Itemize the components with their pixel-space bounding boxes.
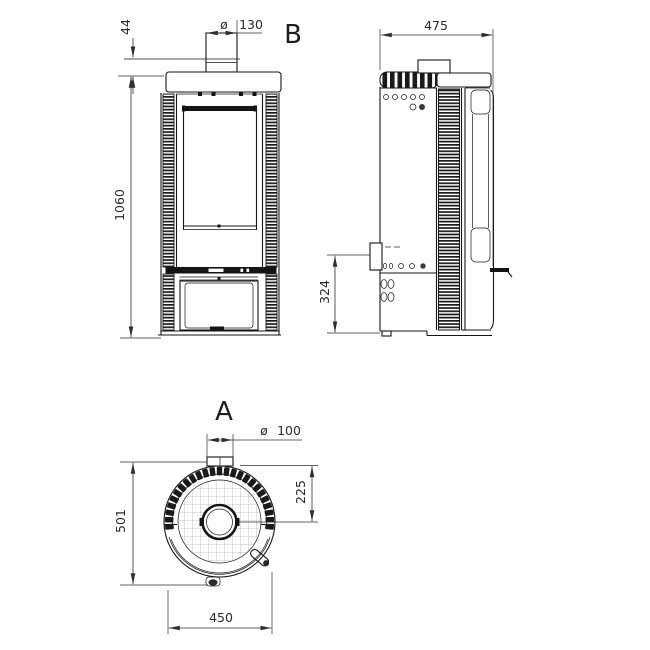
base-hole bbox=[388, 280, 394, 289]
rib-strip-right-lower bbox=[266, 274, 277, 331]
flue-tab-right bbox=[235, 518, 240, 526]
front-view bbox=[124, 33, 281, 335]
view-label-a: A bbox=[215, 397, 233, 427]
side-view bbox=[370, 60, 512, 336]
depth-value: 475 bbox=[424, 18, 448, 33]
collar-height-value: 44 bbox=[118, 19, 133, 35]
air-inlet-spigot-side bbox=[370, 243, 382, 270]
view-label-b: B bbox=[284, 20, 302, 50]
divider-band bbox=[166, 267, 277, 280]
base-hole bbox=[381, 293, 387, 302]
dim-collar-height: 44 bbox=[118, 19, 164, 94]
air-diameter-value: 100 bbox=[277, 423, 301, 438]
rib-strip-left-upper bbox=[163, 94, 174, 267]
vent-hole bbox=[410, 104, 416, 110]
vent-hole bbox=[384, 95, 389, 100]
air-inlet-height-value: 324 bbox=[317, 280, 332, 304]
flue-diameter-symbol: ø bbox=[220, 17, 228, 32]
base-bottom-side bbox=[380, 331, 492, 336]
dim-air-diameter: ø 100 bbox=[207, 423, 302, 457]
rear-top-fins bbox=[380, 72, 438, 88]
vent-hole bbox=[419, 104, 425, 110]
handle-tip bbox=[508, 272, 512, 277]
vent-hole bbox=[420, 263, 425, 268]
hinge-mark bbox=[239, 93, 243, 97]
vent-hole bbox=[410, 264, 415, 269]
total-height-value: 1060 bbox=[112, 189, 127, 221]
hinge-mark bbox=[198, 93, 202, 97]
rib-strip-right-upper bbox=[266, 94, 277, 267]
technical-drawing: 44 ø 130 1060 B bbox=[0, 0, 650, 650]
flue-collar-side bbox=[418, 60, 450, 73]
base-hole bbox=[388, 293, 394, 302]
stove-door bbox=[177, 93, 263, 268]
flue-center-offset-value: 225 bbox=[293, 480, 308, 504]
glass-window bbox=[182, 106, 257, 231]
flue-collar-front bbox=[124, 33, 240, 72]
dim-flue-diameter-front: ø 130 bbox=[207, 17, 263, 33]
door-side-profile bbox=[462, 88, 513, 330]
vent-hole bbox=[420, 95, 425, 100]
rib-strip-left-lower bbox=[163, 274, 174, 331]
door-handle-side bbox=[490, 268, 509, 272]
rear-foot bbox=[382, 331, 391, 336]
air-inlet-spigot-top bbox=[207, 457, 233, 466]
rear-panel bbox=[370, 87, 437, 331]
dim-total-height: 1060 bbox=[112, 77, 161, 338]
hinge-mark bbox=[212, 93, 216, 97]
width-value: 450 bbox=[209, 610, 233, 625]
door-top-cap bbox=[471, 90, 490, 114]
vent-hole bbox=[393, 95, 398, 100]
door-handle-top bbox=[249, 548, 271, 568]
vent-hole bbox=[389, 263, 392, 268]
base-hole bbox=[381, 280, 387, 289]
vent-hole bbox=[399, 264, 404, 269]
vent-hole bbox=[383, 263, 386, 268]
total-depth-value: 501 bbox=[113, 509, 128, 533]
wood-storage-door bbox=[180, 281, 258, 331]
air-diameter-symbol: ø bbox=[260, 423, 268, 438]
storage-door-handle bbox=[210, 327, 224, 331]
top-plate-front bbox=[166, 72, 281, 92]
top-plate-side bbox=[437, 73, 491, 87]
flue-tab-left bbox=[200, 518, 205, 526]
divider-slot bbox=[209, 269, 224, 272]
vent-hole bbox=[402, 95, 407, 100]
vent-hole bbox=[411, 95, 416, 100]
flue-diameter-value: 130 bbox=[239, 17, 263, 32]
top-view bbox=[164, 457, 275, 586]
door-latch-panel bbox=[471, 228, 490, 262]
front-foot-top bbox=[206, 577, 220, 586]
rib-column-side bbox=[439, 89, 460, 330]
hinge-mark bbox=[253, 93, 257, 97]
